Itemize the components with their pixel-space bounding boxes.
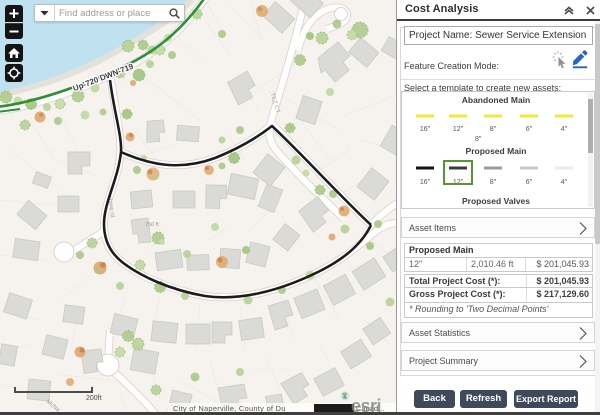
svg-text:4": 4" <box>561 126 568 133</box>
svg-text:200ft: 200ft <box>86 395 102 402</box>
svg-text:16": 16" <box>420 126 431 133</box>
svg-text:8": 8" <box>490 179 497 186</box>
svg-text:12": 12" <box>453 126 464 133</box>
svg-text:8": 8" <box>490 126 497 133</box>
svg-text:750 ft: 750 ft <box>145 222 159 228</box>
svg-text:4": 4" <box>561 179 568 186</box>
svg-text:6": 6" <box>526 126 533 133</box>
svg-text:6": 6" <box>526 179 533 186</box>
svg-text:16": 16" <box>420 179 431 186</box>
